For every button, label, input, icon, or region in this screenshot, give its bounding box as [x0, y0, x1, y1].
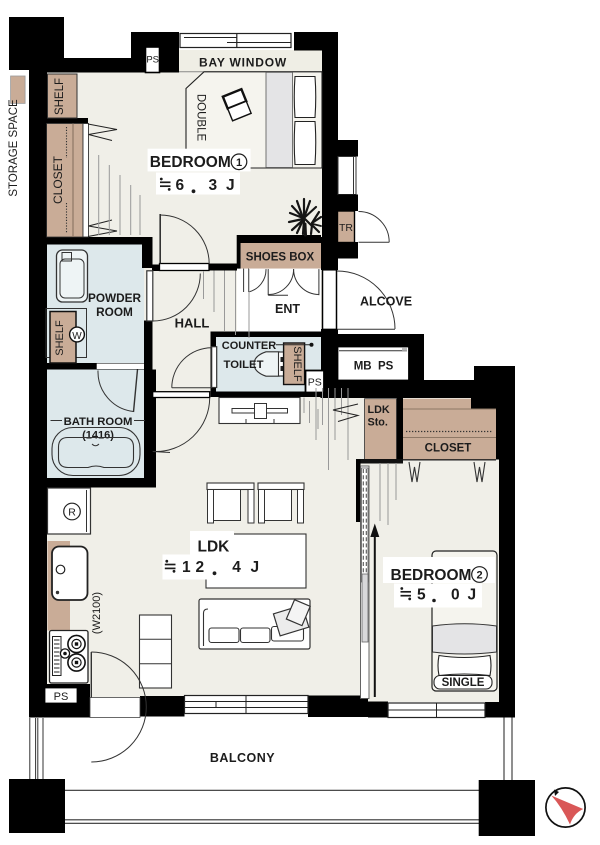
- svg-text:SHELF: SHELF: [54, 78, 66, 115]
- svg-text:2: 2: [476, 570, 482, 582]
- svg-text:BEDROOM: BEDROOM: [150, 154, 231, 171]
- svg-text:(W2100): (W2100): [91, 592, 103, 634]
- svg-text:DOUBLE: DOUBLE: [195, 94, 207, 142]
- svg-text:W: W: [72, 331, 82, 342]
- svg-text:LDK: LDK: [368, 404, 390, 416]
- svg-text:CLOSET: CLOSET: [51, 155, 65, 204]
- svg-text:TOILET: TOILET: [224, 359, 264, 371]
- svg-text:STORAGE SPACE: STORAGE SPACE: [8, 99, 20, 197]
- svg-text:ALCOVE: ALCOVE: [360, 295, 412, 309]
- svg-text:1: 1: [236, 157, 242, 169]
- svg-text:2: 2: [196, 559, 205, 576]
- svg-text:3: 3: [209, 177, 218, 194]
- svg-text:POWDER: POWDER: [88, 291, 142, 305]
- svg-text:R: R: [68, 507, 76, 519]
- svg-text:SHELF: SHELF: [291, 346, 303, 382]
- svg-text:1: 1: [182, 559, 191, 576]
- svg-text:5: 5: [417, 587, 426, 604]
- svg-text:6: 6: [176, 177, 185, 194]
- svg-text:(1416): (1416): [82, 430, 114, 442]
- svg-text:BATH ROOM: BATH ROOM: [64, 416, 133, 428]
- svg-text:SINGLE: SINGLE: [442, 677, 485, 689]
- svg-text:J: J: [251, 559, 260, 576]
- svg-text:ENT: ENT: [275, 302, 300, 316]
- svg-text:Sto.: Sto.: [368, 417, 388, 429]
- svg-text:0: 0: [451, 587, 460, 604]
- svg-text:LDK: LDK: [198, 539, 231, 556]
- svg-text:PS: PS: [146, 55, 159, 66]
- svg-text:4: 4: [232, 559, 241, 576]
- svg-text:MB PS: MB PS: [354, 361, 394, 373]
- svg-text:PS: PS: [308, 377, 322, 389]
- svg-text:SHELF: SHELF: [54, 320, 66, 356]
- svg-text:PS: PS: [54, 691, 69, 703]
- svg-text:BEDROOM: BEDROOM: [391, 567, 472, 584]
- svg-text:J: J: [468, 587, 477, 604]
- svg-text:BAY WINDOW: BAY WINDOW: [199, 56, 287, 70]
- svg-text:SHOES BOX: SHOES BOX: [246, 252, 315, 264]
- svg-text:CLOSET: CLOSET: [425, 443, 472, 455]
- svg-text:COUNTER: COUNTER: [222, 340, 276, 352]
- svg-text:HALL: HALL: [175, 316, 210, 331]
- svg-text:J: J: [226, 177, 235, 194]
- svg-text:BALCONY: BALCONY: [210, 751, 275, 765]
- svg-text:ROOM: ROOM: [96, 305, 133, 319]
- svg-text:TR: TR: [339, 222, 353, 234]
